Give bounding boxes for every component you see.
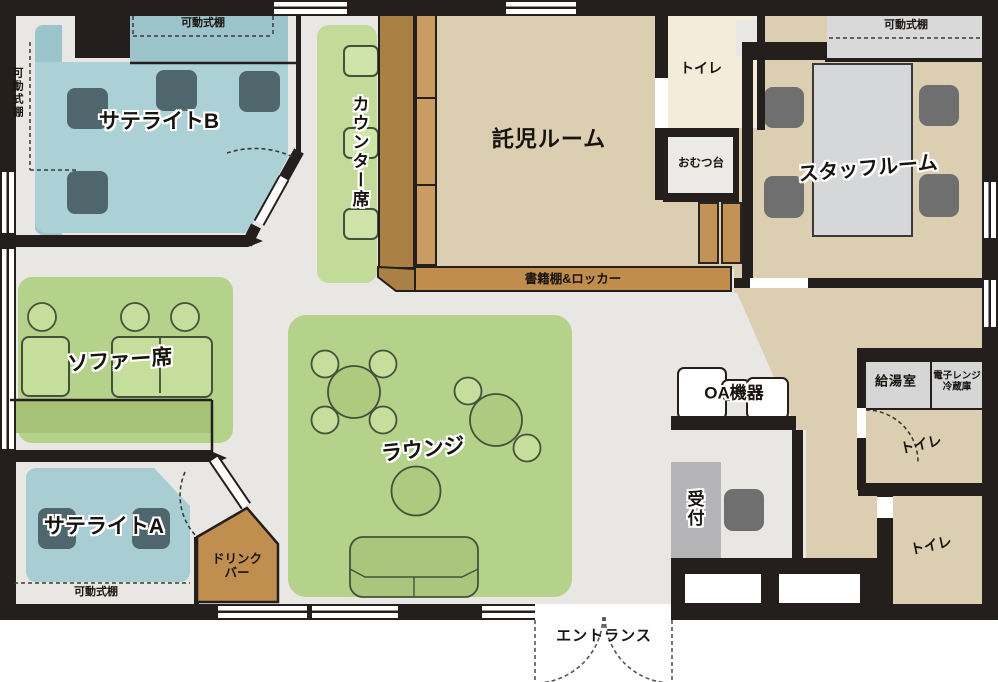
label-toilet-top: トイレ: [680, 61, 722, 77]
label-reception: 受付: [684, 490, 703, 528]
label-satellite-b: サテライトB: [99, 110, 219, 134]
label-drink-bar-line: バー: [212, 566, 262, 580]
label-drink-bar: ドリンク バー: [212, 552, 262, 580]
stool: [121, 303, 149, 331]
door-swing-arc: [227, 148, 295, 158]
label-bookshelf-locker: 書籍棚&ロッカー: [525, 272, 622, 286]
lounge-chair: [370, 407, 397, 434]
lounge-chair: [455, 378, 482, 405]
floor-plan: サテライトB 可動式棚 可動式棚 カウンター席 託児ルーム トイレ おむつ台 ス…: [0, 0, 998, 682]
label-oa-equipment: OA機器: [704, 383, 764, 402]
stool: [171, 303, 199, 331]
wall-diagonal: [284, 151, 299, 178]
lounge-small-table: [392, 467, 441, 516]
label-movable-shelf: 可動式棚: [74, 586, 118, 598]
door-leaf-satellite-b: [259, 178, 284, 223]
lounge-table-group: [455, 378, 541, 462]
lounge-chair: [312, 407, 339, 434]
label-drink-bar-line: ドリンク: [212, 552, 262, 566]
lounge-round-table: [328, 366, 380, 418]
label-movable-shelf: 可動式棚: [884, 19, 928, 31]
stool: [28, 303, 56, 331]
label-childcare-room: 託児ルーム: [492, 128, 606, 153]
label-microwave-fridge: 電子レンジ 冷蔵庫: [933, 371, 981, 392]
lounge-table-group: [312, 351, 397, 434]
movable-shelf-outline: [30, 42, 76, 170]
plan-overlay: [0, 0, 998, 682]
counter-diagonal: [378, 267, 415, 291]
lounge-round-table: [470, 394, 522, 446]
label-movable-shelf: 可動式棚: [11, 67, 23, 119]
door-swing-arc: [180, 472, 198, 538]
lounge-chair: [312, 351, 339, 378]
label-diaper-station: おむつ台: [678, 158, 724, 171]
label-fridge-line: 冷蔵庫: [933, 382, 981, 393]
label-kitchenette: 給湯室: [875, 375, 917, 390]
door-leaf-satellite-a: [214, 459, 246, 506]
label-movable-shelf: 可動式棚: [181, 17, 225, 29]
lounge-chair: [370, 351, 397, 378]
label-counter-seats: カウンター席: [349, 95, 368, 209]
lounge-chair: [514, 435, 541, 462]
label-entrance: エントランス: [556, 629, 652, 646]
label-satellite-a: サテライトA: [44, 515, 164, 539]
lounge-sofa: [350, 537, 478, 597]
